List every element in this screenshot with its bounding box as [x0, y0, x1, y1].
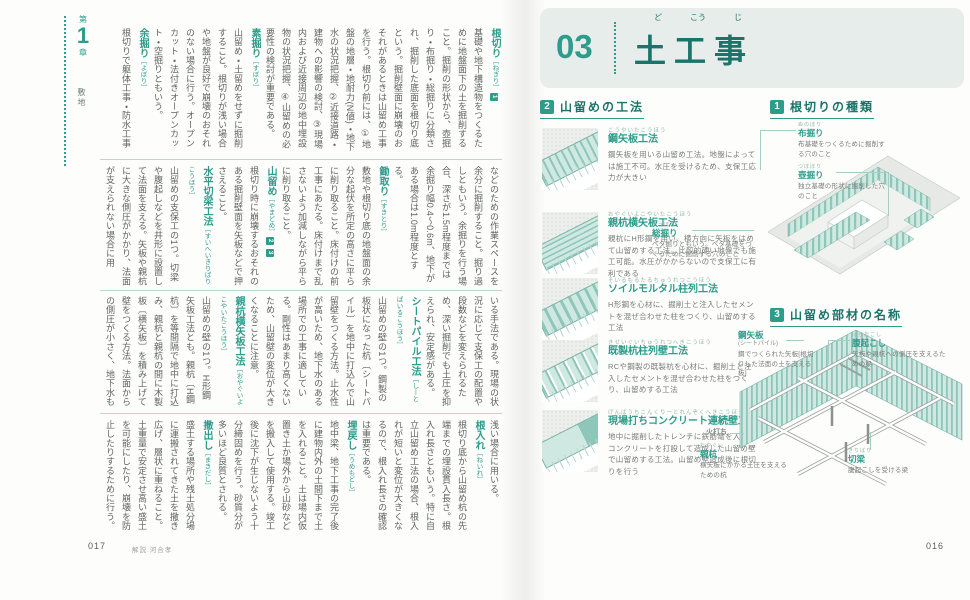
glossary-term-text: 根切り: [489, 28, 500, 58]
chapter-section-label: 敷地: [76, 88, 87, 108]
glossary-band: などのための作業スペースを余分に掘削すること。掘り過しともいう。余掘りを行う場合…: [102, 166, 502, 286]
glossary-band: いる手法である。現場の状況に応じて支保工の配置や段数などを変えられるため、深い掘…: [102, 296, 502, 408]
glossary-band: 浅い場合に用いる。根入れ［ねいれ］根切り底から山留め杭の先端までの埋設貫入長さ。…: [102, 420, 502, 534]
glossary-term-reading: ［ねぎり］: [491, 58, 498, 91]
glossary-body: などのための作業スペースを余分に掘削すること。掘り過しともいう。余掘りを行う場合…: [390, 166, 502, 286]
glossary-body: 山留め・土留めをせずに掘削すること。根切りが浅い場合や地盤が良好で崩壊のおそれの…: [150, 28, 246, 154]
glossary-body: 根切りで躯体工事・防水工事: [118, 28, 134, 154]
band-divider: [100, 290, 502, 291]
lagging-illustration: [542, 212, 598, 274]
book-spread: 第 1 章 敷地 根切り［ねぎり］1基礎や地下構造物をつくるために地盤面下の土を…: [0, 0, 970, 600]
ref-badge: 3: [266, 249, 274, 257]
method-name: ソイルモルタル柱列工法: [608, 284, 758, 296]
callout-term: 親杭: [700, 449, 790, 459]
section-badge: 2: [540, 100, 554, 114]
glossary-term-text: 山留め: [265, 166, 276, 196]
glossary-term-text: 撒出し: [201, 420, 212, 450]
callout-sheetpile: 鋼矢板 (シートパイル) 鋼でつくられた矢板[根切りした法面の土を支える板]: [738, 330, 814, 379]
sheet-pile-illustration: [542, 128, 598, 190]
chapter-number: 1: [72, 25, 94, 47]
glossary-term: 撒出し［まきだし］: [198, 420, 214, 534]
method-reading: おやぐいよこやいたこうほう: [608, 210, 758, 218]
glossary-term-reading: ［よぼり］: [139, 58, 146, 91]
glossary-term-text: 素掘り: [249, 28, 260, 58]
callout-term: 火打ち: [706, 428, 727, 438]
soil-columns-illustration: [542, 278, 598, 340]
callout-term: 壺掘り: [798, 170, 890, 180]
chapter-dotted-line: [64, 16, 66, 166]
callout-nunobori: ぬのぼり 布掘り 布基礎をつくるために掘削する穴のこと: [798, 122, 890, 159]
glossary-band: 根切り［ねぎり］1基礎や地下構造物をつくるために地盤面下の土を掘削すること。掘削…: [118, 28, 502, 154]
callout-term: 鋼矢板: [738, 330, 814, 340]
leader-line: [760, 130, 761, 170]
glossary-term: 水平切梁工法［すいへいきりばりこうほう］: [182, 166, 214, 286]
leader-line: [760, 130, 796, 131]
callout-desc: 布基礎をつくるために掘削する穴のこと: [798, 140, 890, 159]
callout-term: 腹起こし: [852, 338, 948, 348]
glossary-term: シートパイル工法［しーとぱいるこうほう］: [390, 296, 422, 408]
callout-desc: 横矢板にかかる土圧を支えるための杭: [700, 461, 790, 480]
glossary-term-text: 親杭横矢板工法: [233, 296, 244, 366]
left-page-number: 017: [88, 541, 106, 551]
callout-desc: ベタ掘りともいう。ベタ基礎をつくるために掘削する穴のこと: [652, 240, 756, 259]
glossary-term-text: 埋戻し: [345, 420, 356, 450]
glossary-term-text: シートパイル工法: [409, 296, 420, 376]
chapter-rail: 第 1 章 敷地: [62, 14, 96, 174]
right-page-number: 016: [926, 541, 944, 551]
glossary-body: 山留めの壁の1つ。H形鋼矢板工法とも。親杭〔H鋼杭〕を等間隔で地中に打込み、親杭…: [102, 296, 214, 408]
callout-term: 布掘り: [798, 128, 890, 138]
pile-row-illustration: [542, 340, 598, 402]
method-text: こうやいたこうほう鋼矢板工法鋼矢板を用いる山留め工法。地盤によっては施工不可。水…: [608, 126, 758, 184]
glossary-body: 山留めの壁の1つ。鋼製の板状になった杭〔シートパイル〕を地中に打込んで山留壁をつ…: [246, 296, 390, 408]
callout-desc: 鋼でつくられた矢板[根切りした法面の土を支える板]: [738, 350, 814, 379]
callout-haraokoshi: はらおこし 腹起こし 矢板や親杭への側圧を支えるための梁: [852, 332, 948, 369]
glossary-body: いる手法である。現場の状況に応じて支保工の配置や段数などを変えられるため、深い掘…: [422, 296, 502, 408]
glossary-term-reading: ［やまどめ］: [267, 196, 274, 235]
methods-list: こうやいたこうほう鋼矢板工法鋼矢板を用いる山留め工法。地盤によっては施工不可。水…: [540, 126, 760, 576]
callout-desc: 独立基礎の形状に掘削した穴のこと: [798, 182, 890, 201]
left-page-credit: 解説:河合孝: [132, 544, 172, 554]
method-reading: そいるもるたるちゅうれつこうほう: [608, 276, 758, 284]
glossary-term-reading: ［すぼり］: [251, 58, 258, 91]
glossary-body: 根切り時に崩壊するおそれのある掘削壁面を矢板などで押さえること。: [214, 166, 262, 286]
chapter-marker: 第 1 章: [72, 14, 94, 58]
glossary-body: 盛土する場所や残土処分場に運搬されてきた土を撒き広げ、層状に重ねること。土重量で…: [102, 420, 198, 534]
section-heading-methods: 2 山留めの工法: [540, 98, 644, 119]
glossary-term: 余掘り［よぼり］: [134, 28, 150, 154]
callout-desc: 矢板や親杭への側圧を支えるための梁: [852, 350, 948, 369]
leader-line: [828, 340, 829, 364]
section-badge: 3: [770, 308, 784, 322]
glossary-term: 親杭横矢板工法［おやぐいよこやいたこうほう］: [214, 296, 246, 408]
glossary-term: 鋤取り［すきとり］: [374, 166, 390, 286]
page-title: 土工事: [634, 26, 754, 72]
glossary-term: 根入れ［ねいれ］: [470, 420, 486, 534]
title-furigana: ど こう じ: [640, 12, 756, 23]
section-title: 山留め部材の名称: [790, 306, 902, 323]
furigana-char: ど: [654, 12, 662, 23]
furigana-char: じ: [734, 12, 742, 23]
glossary-term-reading: ［ねいれ］: [475, 450, 482, 483]
title-dotted-separator: [614, 22, 616, 74]
glossary-term-text: 余掘り: [137, 28, 148, 58]
ref-badge: 2: [266, 237, 274, 245]
callout-term: 総掘り: [652, 228, 756, 238]
leader-line: [742, 418, 743, 434]
callout-kiribari: きりばり 切梁 腹起こしを受ける梁: [848, 448, 938, 476]
callout-sub: (シートパイル): [738, 340, 814, 348]
glossary-body: 地中梁、地下工事の完了後に建物内外の土間下まで土を入れること。土は場内仮置き土か…: [214, 420, 342, 534]
ref-badge: 1: [490, 93, 498, 101]
leader-line: [828, 340, 850, 341]
callout-hiuchi: 火打ち: [706, 428, 727, 438]
method-reading: こうやいたこうほう: [608, 126, 758, 134]
glossary-term-reading: ［うめもどし］: [347, 450, 354, 496]
glossary-term-text: 根入れ: [473, 420, 484, 450]
glossary-body: 山留めの支保工の1つ。切梁や腹起しなどを井形に設置して法面を支える。矢板や親杭に…: [102, 166, 182, 286]
glossary-term-text: 水平切梁工法: [201, 166, 212, 226]
glossary-term-text: 鋤取り: [377, 166, 388, 196]
band-divider: [100, 413, 502, 414]
section-number: 03: [556, 28, 593, 66]
glossary-term-reading: ［すきとり］: [379, 196, 386, 235]
section-title: 山留めの工法: [560, 98, 644, 115]
glossary-body: 敷地や根切り底の地盤面の余分な起伏を所定の高さに平らに削り取ること。床付けの前工…: [278, 166, 374, 286]
glossary-term: 山留め［やまどめ］23: [262, 166, 278, 286]
callout-term: 切梁: [848, 454, 938, 464]
chapter-suffix: 章: [72, 47, 94, 58]
glossary-term-reading: ［まきだし］: [203, 450, 210, 489]
callout-oyagui: おやぐい 親杭 横矢板にかかる土圧を支えるための杭: [700, 443, 790, 480]
band-divider: [100, 159, 502, 160]
glossary-bands: 根切り［ねぎり］1基礎や地下構造物をつくるために地盤面下の土を掘削すること。掘削…: [100, 0, 502, 560]
glossary-body: 根切り底から山留め杭の先端までの埋設貫入長さ。根入れ長さともいう。特に自立山留め…: [358, 420, 470, 534]
glossary-term: 素掘り［すぼり］: [246, 28, 262, 154]
method-name: 鋼矢板工法: [608, 134, 758, 146]
callout-tsubobori: つぼぼり 壺掘り 独立基礎の形状に掘削した穴のこと: [798, 164, 890, 201]
callout-soubori: そうぼり 総掘り ベタ掘りともいう。ベタ基礎をつくるために掘削する穴のこと: [652, 222, 756, 259]
diaphragm-illustration: [542, 410, 598, 472]
method-description: 鋼矢板を用いる山留め工法。地盤によっては施工不可。水圧を受けるため、支保工応力が…: [608, 149, 758, 184]
glossary-body: 基礎や地下構造物をつくるために地盤面下の土を掘削すること。掘削の形状から、壺掘り…: [262, 28, 486, 154]
glossary-term: 埋戻し［うめもどし］: [342, 420, 358, 534]
furigana-char: こう: [690, 12, 706, 23]
callout-desc: 腹起こしを受ける梁: [848, 466, 938, 476]
